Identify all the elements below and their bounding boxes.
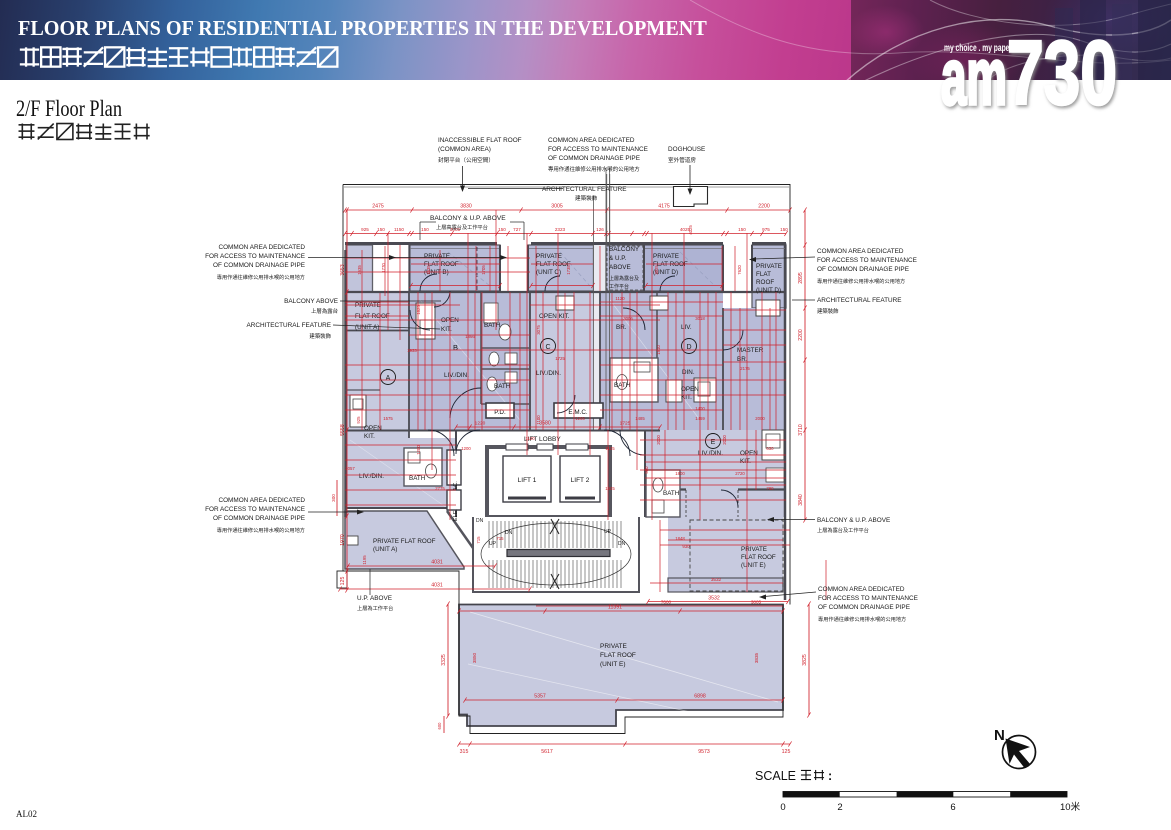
svg-text:3710: 3710 [798, 424, 804, 436]
svg-text:1125: 1125 [605, 446, 615, 451]
svg-text:FLAT ROOF: FLAT ROOF [741, 554, 776, 561]
svg-text:4175: 4175 [658, 204, 670, 210]
svg-text:ARCHITECTURAL FEATURE: ARCHITECTURAL FEATURE [817, 297, 902, 304]
svg-text:ABOVE: ABOVE [609, 264, 631, 271]
svg-text:上層為露台及: 上層為露台及 [609, 275, 639, 282]
svg-text:am: am [941, 32, 1007, 121]
svg-text:N: N [994, 727, 1005, 744]
svg-text:KIT.: KIT. [441, 326, 452, 333]
svg-text:5617: 5617 [541, 749, 553, 755]
svg-text:1195: 1195 [362, 555, 367, 565]
svg-text:LIV./DIN.: LIV./DIN. [536, 370, 561, 377]
svg-text:BALCONY: BALCONY [609, 246, 640, 253]
svg-text:2895: 2895 [798, 272, 804, 284]
svg-text:5357: 5357 [534, 694, 546, 700]
svg-text:1635: 1635 [357, 265, 362, 275]
svg-text:BATH: BATH [663, 490, 680, 497]
svg-text:10米: 10米 [1060, 801, 1081, 813]
svg-text:730: 730 [1007, 23, 1117, 124]
svg-text:專用作通往維修公用排水喉的公用地方: 專用作通往維修公用排水喉的公用地方 [548, 165, 640, 173]
svg-text:FOR ACCESS TO MAINTENANCE: FOR ACCESS TO MAINTENANCE [817, 257, 917, 264]
svg-text:3025: 3025 [654, 265, 659, 275]
svg-text:LIV.: LIV. [681, 324, 692, 331]
svg-text:DOGHOUSE: DOGHOUSE [668, 146, 705, 153]
svg-text:1150: 1150 [394, 227, 404, 232]
svg-text:1925: 1925 [605, 486, 615, 491]
svg-text:300: 300 [331, 494, 336, 502]
svg-text:LIV./DIN.: LIV./DIN. [359, 473, 384, 480]
svg-text:1725: 1725 [555, 356, 565, 361]
svg-text:LIV./DIN.: LIV./DIN. [698, 450, 723, 457]
svg-text:1200: 1200 [416, 445, 421, 455]
svg-text:3075: 3075 [536, 325, 541, 335]
svg-text:BALCONY & U.P. ABOVE: BALCONY & U.P. ABOVE [430, 215, 506, 222]
svg-text:OPEN: OPEN [740, 450, 758, 457]
svg-text:125: 125 [340, 577, 346, 586]
svg-text:(UNIT C): (UNIT C) [536, 269, 561, 276]
svg-text:3850: 3850 [472, 652, 477, 663]
svg-text:KIT.: KIT. [740, 458, 751, 465]
svg-text:1800: 1800 [675, 471, 685, 476]
svg-text:(UNIT D): (UNIT D) [756, 287, 781, 294]
svg-text:1220: 1220 [475, 421, 486, 427]
svg-text:室外管道房: 室外管道房 [668, 156, 696, 164]
svg-text:1100: 1100 [536, 415, 541, 425]
svg-text:BATH: BATH [494, 383, 511, 390]
svg-text:PRIVATE: PRIVATE [756, 263, 782, 270]
svg-text:FLAT: FLAT [756, 271, 771, 278]
svg-text:7600: 7600 [661, 600, 672, 605]
svg-text:2/F Floor Plan: 2/F Floor Plan [16, 96, 122, 121]
svg-text:OF COMMON DRAINAGE PIPE: OF COMMON DRAINAGE PIPE [548, 155, 640, 162]
svg-text:3825: 3825 [802, 654, 808, 666]
svg-text:3840: 3840 [798, 494, 804, 506]
svg-text:BATH: BATH [614, 382, 631, 389]
svg-text:1265: 1265 [575, 416, 585, 421]
svg-text:315: 315 [460, 749, 469, 755]
svg-text:630: 630 [766, 446, 774, 451]
svg-text:925: 925 [356, 416, 361, 424]
svg-text:OF COMMON DRAINAGE PIPE: OF COMMON DRAINAGE PIPE [817, 266, 909, 273]
svg-text:2000: 2000 [722, 435, 727, 445]
svg-text:上層為工作平台: 上層為工作平台 [357, 604, 393, 612]
svg-text:1970: 1970 [340, 534, 346, 546]
svg-text:BR.: BR. [616, 324, 627, 331]
svg-text:(COMMON AREA): (COMMON AREA) [438, 146, 491, 153]
svg-text:FLAT ROOF: FLAT ROOF [600, 652, 636, 659]
svg-text:2200: 2200 [798, 329, 804, 341]
svg-text:COMMON AREA DEDICATED: COMMON AREA DEDICATED [218, 244, 305, 251]
svg-text:1575: 1575 [383, 416, 393, 421]
svg-text:1848: 1848 [675, 536, 685, 541]
svg-text:1120: 1120 [525, 436, 535, 441]
svg-text:2: 2 [837, 802, 842, 813]
svg-text:2000: 2000 [656, 435, 661, 445]
svg-text:SCALE: SCALE [755, 769, 796, 783]
svg-text:126: 126 [596, 227, 604, 232]
svg-text:150: 150 [377, 227, 385, 232]
svg-text:UP: UP [604, 529, 612, 535]
svg-text:PRIVATE: PRIVATE [424, 253, 450, 260]
svg-text:建築裝飾: 建築裝飾 [575, 194, 598, 202]
svg-text:INACCESSIBLE FLAT ROOF: INACCESSIBLE FLAT ROOF [438, 137, 522, 144]
svg-text:FLAT ROOF: FLAT ROOF [355, 313, 390, 320]
svg-text:3532: 3532 [708, 596, 720, 602]
svg-text:DN: DN [505, 530, 513, 536]
svg-text:3018: 3018 [695, 316, 705, 321]
svg-text:COMMON AREA DEDICATED: COMMON AREA DEDICATED [818, 586, 905, 593]
svg-text:建築裝飾: 建築裝飾 [817, 307, 839, 315]
svg-text:925: 925 [361, 227, 369, 232]
svg-text:600: 600 [437, 722, 442, 730]
svg-text:ROOF: ROOF [756, 279, 774, 286]
svg-text:(UNIT E): (UNIT E) [600, 661, 626, 668]
svg-text:E.M.C.: E.M.C. [568, 409, 587, 416]
svg-text:9573: 9573 [698, 749, 710, 755]
svg-text:COMMON AREA DEDICATED: COMMON AREA DEDICATED [218, 497, 305, 504]
svg-text:2775: 2775 [435, 486, 445, 491]
svg-text:7620: 7620 [737, 265, 742, 275]
svg-text:FOR ACCESS TO MAINTENANCE: FOR ACCESS TO MAINTENANCE [548, 146, 648, 153]
svg-text:3005: 3005 [551, 204, 563, 210]
svg-text:125: 125 [782, 749, 791, 755]
svg-text:DN: DN [618, 541, 626, 547]
svg-text:U.P. ABOVE: U.P. ABOVE [357, 595, 392, 602]
svg-text:1825: 1825 [416, 305, 421, 315]
svg-text:1400: 1400 [695, 406, 705, 411]
svg-text:KIT.: KIT. [364, 433, 375, 440]
svg-text:PRIVATE FLAT ROOF: PRIVATE FLAT ROOF [373, 538, 436, 545]
svg-text:LIFT 2: LIFT 2 [571, 477, 590, 484]
svg-text:2720: 2720 [735, 471, 745, 476]
svg-text:ARCHITECTURAL FEATURE: ARCHITECTURAL FEATURE [246, 322, 331, 329]
svg-text:1705: 1705 [481, 265, 486, 275]
svg-text:2175: 2175 [740, 366, 750, 371]
svg-text:FOR ACCESS TO MAINTENANCE: FOR ACCESS TO MAINTENANCE [818, 595, 918, 602]
svg-text:建築裝飾: 建築裝飾 [309, 332, 331, 340]
svg-text:FOR ACCESS TO MAINTENANCE: FOR ACCESS TO MAINTENANCE [205, 506, 305, 513]
svg-text::: : [828, 769, 832, 783]
svg-text:0: 0 [780, 802, 785, 813]
svg-text:OF COMMON DRAINAGE PIPE: OF COMMON DRAINAGE PIPE [213, 515, 305, 522]
svg-text:專用作通往維修公用排水喉的公用地方: 專用作通往維修公用排水喉的公用地方 [217, 526, 305, 534]
svg-text:500: 500 [644, 466, 649, 474]
svg-text:(UNIT A): (UNIT A) [373, 546, 397, 553]
svg-text:OF COMMON DRAINAGE PIPE: OF COMMON DRAINAGE PIPE [818, 604, 910, 611]
svg-text:OF COMMON DRAINAGE PIPE: OF COMMON DRAINAGE PIPE [213, 262, 305, 269]
svg-text:PRIVATE: PRIVATE [653, 253, 679, 260]
svg-text:4031: 4031 [431, 583, 443, 589]
svg-text:1485: 1485 [635, 416, 645, 421]
svg-text:專用作通往維修公用排水喉的公用地方: 專用作通往維修公用排水喉的公用地方 [217, 273, 305, 281]
svg-text:11391: 11391 [608, 605, 622, 611]
svg-text:(UNIT A): (UNIT A) [355, 324, 379, 331]
svg-text:COMMON AREA DEDICATED: COMMON AREA DEDICATED [817, 248, 904, 255]
svg-text:2200: 2200 [758, 204, 770, 210]
svg-text:1120: 1120 [615, 296, 625, 301]
svg-text:2323: 2323 [555, 227, 566, 232]
svg-text:2475: 2475 [372, 204, 384, 210]
svg-text:1635: 1635 [426, 265, 431, 275]
svg-text:PRIVATE: PRIVATE [741, 546, 767, 553]
svg-text:1725: 1725 [620, 421, 631, 427]
svg-text:3830: 3830 [460, 204, 472, 210]
svg-text:2057: 2057 [345, 466, 355, 471]
svg-text:2000: 2000 [755, 416, 765, 421]
svg-text:150: 150 [421, 227, 429, 232]
svg-text:727: 727 [513, 227, 521, 232]
svg-text:FOR ACCESS TO MAINTENANCE: FOR ACCESS TO MAINTENANCE [205, 253, 305, 260]
svg-text:BATH: BATH [484, 322, 501, 329]
svg-text:BALCONY & U.P. ABOVE: BALCONY & U.P. ABOVE [817, 517, 890, 524]
svg-text:MASTER: MASTER [737, 347, 764, 354]
svg-text:1735: 1735 [566, 265, 571, 275]
svg-text:專用作通往維修公用排水喉的公用地方: 專用作通往維修公用排水喉的公用地方 [817, 277, 905, 285]
svg-text:ARCHITECTURAL FEATURE: ARCHITECTURAL FEATURE [542, 186, 627, 193]
svg-text:上層為露台: 上層為露台 [311, 307, 338, 315]
svg-text:930: 930 [682, 544, 690, 549]
svg-text:DN: DN [476, 518, 484, 524]
svg-text:715: 715 [476, 536, 481, 544]
svg-text:975: 975 [762, 227, 770, 232]
svg-text:1770: 1770 [381, 263, 386, 273]
svg-text:上層高露台及工作平台: 上層高露台及工作平台 [436, 223, 488, 231]
svg-text:3653: 3653 [340, 264, 346, 276]
svg-text:工作平台: 工作平台 [609, 283, 629, 290]
svg-text:150: 150 [780, 227, 788, 232]
svg-text:715: 715 [496, 536, 504, 541]
svg-text:3835: 3835 [754, 652, 759, 663]
svg-text:PRIVATE: PRIVATE [355, 302, 381, 309]
svg-text:3325: 3325 [441, 654, 447, 666]
svg-text:3006: 3006 [623, 316, 633, 321]
svg-text:4025: 4025 [688, 225, 693, 235]
svg-text:上層為露台及工作平台: 上層為露台及工作平台 [817, 526, 869, 534]
svg-text:150: 150 [738, 227, 746, 232]
svg-text:780: 780 [766, 486, 774, 491]
svg-text:1510: 1510 [656, 345, 661, 355]
svg-text:COMMON AREA DEDICATED: COMMON AREA DEDICATED [548, 137, 635, 144]
svg-text:A: A [386, 375, 391, 382]
svg-text:1933: 1933 [407, 348, 417, 353]
svg-text:OPEN: OPEN [364, 425, 382, 432]
svg-text:150: 150 [498, 227, 506, 232]
svg-text:3532: 3532 [711, 577, 722, 582]
svg-text:專用作通往維修公用排水喉的公用地方: 專用作通往維修公用排水喉的公用地方 [818, 615, 906, 623]
svg-text:BALCONY ABOVE: BALCONY ABOVE [284, 298, 338, 305]
svg-text:6898: 6898 [694, 694, 706, 700]
svg-text:5558: 5558 [340, 424, 346, 436]
svg-text:PRIVATE: PRIVATE [600, 643, 628, 650]
svg-text:LIFT 1: LIFT 1 [518, 477, 537, 484]
svg-text:ELE.: ELE. [453, 509, 459, 522]
svg-text:1866: 1866 [465, 334, 475, 339]
svg-text:LIV./DIN.: LIV./DIN. [444, 372, 469, 379]
svg-text:6: 6 [950, 802, 955, 813]
svg-text:封閉平台（公用空間）: 封閉平台（公用空間） [438, 156, 494, 164]
svg-text:& U.P.: & U.P. [609, 255, 627, 262]
svg-text:1469: 1469 [695, 416, 705, 421]
svg-text:(UNIT E): (UNIT E) [741, 562, 766, 569]
svg-text:B: B [453, 343, 458, 352]
svg-text:UP: UP [489, 541, 497, 547]
svg-text:4031: 4031 [431, 560, 443, 566]
svg-text:3805: 3805 [751, 600, 762, 605]
svg-text:1200: 1200 [461, 446, 471, 451]
svg-text:BATH: BATH [409, 475, 426, 482]
